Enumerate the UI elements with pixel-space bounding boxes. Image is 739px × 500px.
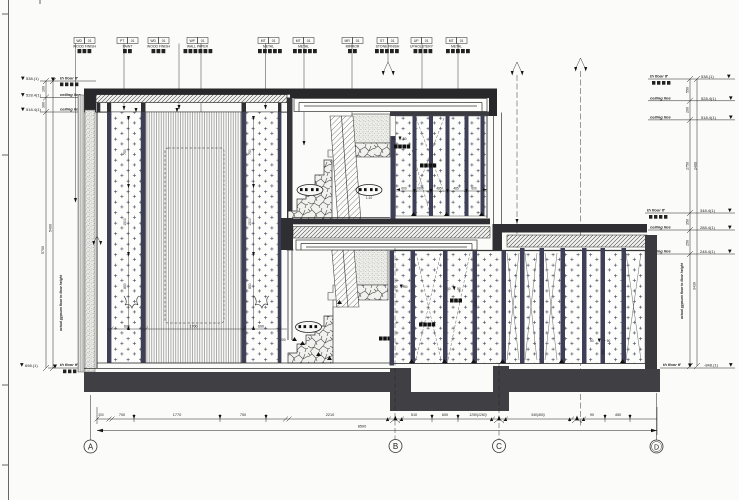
svg-text:1:10: 1:10 bbox=[366, 196, 372, 200]
svg-text:WP: WP bbox=[189, 39, 195, 43]
svg-text:50: 50 bbox=[404, 285, 408, 289]
svg-text:01: 01 bbox=[391, 39, 395, 43]
svg-text:750: 750 bbox=[248, 149, 252, 155]
svg-text:90: 90 bbox=[590, 413, 594, 417]
svg-text:01: 01 bbox=[201, 39, 205, 43]
svg-text:690: 690 bbox=[258, 325, 264, 329]
svg-text:700: 700 bbox=[240, 413, 246, 417]
svg-text:350: 350 bbox=[601, 349, 605, 355]
svg-text:8500: 8500 bbox=[358, 425, 366, 429]
svg-text:2210: 2210 bbox=[326, 413, 334, 417]
svg-text:850: 850 bbox=[123, 283, 127, 289]
svg-text:ceiling line: ceiling line bbox=[650, 225, 671, 230]
svg-text:actual gypsum floor to floor h: actual gypsum floor to floor height bbox=[680, 262, 684, 319]
svg-text:1700: 1700 bbox=[190, 325, 198, 329]
svg-text:348.4(1): 348.4(1) bbox=[700, 208, 716, 213]
svg-text:METAL: METAL bbox=[298, 45, 309, 49]
svg-text:01: 01 bbox=[460, 39, 464, 43]
svg-text:1290(1260): 1290(1260) bbox=[469, 413, 486, 417]
svg-text:528.4(1): 528.4(1) bbox=[26, 93, 42, 98]
svg-text:50: 50 bbox=[457, 287, 461, 291]
svg-text:MT: MT bbox=[261, 39, 266, 43]
svg-text:WOOD FINISH: WOOD FINISH bbox=[147, 45, 171, 49]
svg-text:01: 01 bbox=[162, 39, 166, 43]
svg-text:250: 250 bbox=[686, 240, 690, 246]
svg-text:-848.(1): -848.(1) bbox=[704, 363, 719, 368]
svg-text:1500: 1500 bbox=[123, 218, 127, 226]
svg-text:UP: UP bbox=[414, 39, 419, 43]
svg-text:50: 50 bbox=[590, 339, 594, 343]
svg-text:288.4(1): 288.4(1) bbox=[700, 225, 716, 230]
svg-text:A: A bbox=[88, 443, 94, 452]
svg-text:MR: MR bbox=[345, 39, 351, 43]
svg-text:1500: 1500 bbox=[248, 218, 252, 226]
svg-text:750: 750 bbox=[123, 149, 127, 155]
svg-text:200: 200 bbox=[280, 338, 286, 342]
svg-text:600: 600 bbox=[401, 187, 407, 191]
svg-text:50: 50 bbox=[392, 137, 396, 141]
svg-text:B: B bbox=[393, 442, 398, 451]
svg-text:01: 01 bbox=[88, 39, 92, 43]
svg-text:50: 50 bbox=[447, 287, 451, 291]
svg-text:3430: 3430 bbox=[693, 282, 697, 290]
svg-text:MT: MT bbox=[449, 39, 454, 43]
svg-text:PT: PT bbox=[120, 39, 124, 43]
svg-text:50: 50 bbox=[403, 137, 407, 141]
svg-text:2400: 2400 bbox=[694, 162, 698, 170]
svg-text:5400: 5400 bbox=[49, 224, 53, 232]
svg-text:2350: 2350 bbox=[474, 299, 478, 307]
svg-text:01: 01 bbox=[307, 39, 311, 43]
svg-text:WALL PAPER: WALL PAPER bbox=[187, 45, 209, 49]
svg-text:528.4(1): 528.4(1) bbox=[701, 96, 717, 101]
svg-text:350: 350 bbox=[686, 219, 690, 225]
svg-text:WD: WD bbox=[76, 39, 82, 43]
svg-text:850: 850 bbox=[248, 283, 252, 289]
svg-text:538.(1): 538.(1) bbox=[26, 76, 39, 81]
svg-text:518.4(1): 518.4(1) bbox=[26, 107, 42, 112]
svg-text:WOOD FINISH: WOOD FINISH bbox=[73, 45, 97, 49]
svg-text:248.4(1): 248.4(1) bbox=[700, 249, 716, 254]
svg-text:th floor ff: th floor ff bbox=[60, 362, 78, 367]
svg-text:538.(1): 538.(1) bbox=[701, 74, 714, 79]
svg-text:ceiling line: ceiling line bbox=[650, 114, 671, 119]
svg-text:510: 510 bbox=[411, 413, 417, 417]
svg-text:01: 01 bbox=[272, 39, 276, 43]
svg-text:C: C bbox=[496, 442, 502, 451]
svg-text:+ 50: + 50 bbox=[604, 339, 611, 343]
svg-text:1770: 1770 bbox=[173, 413, 181, 417]
svg-text:5700: 5700 bbox=[41, 246, 45, 254]
svg-text:th floor ff: th floor ff bbox=[663, 362, 681, 367]
svg-text:th floor ff: th floor ff bbox=[650, 74, 668, 79]
svg-text:600: 600 bbox=[418, 187, 424, 191]
svg-text:450: 450 bbox=[615, 413, 621, 417]
svg-text:ST: ST bbox=[380, 39, 384, 43]
svg-text:MT: MT bbox=[296, 39, 301, 43]
svg-text:01: 01 bbox=[425, 39, 429, 43]
svg-text:MIRROR: MIRROR bbox=[346, 45, 360, 49]
svg-text:485: 485 bbox=[453, 187, 459, 191]
svg-text:540(450): 540(450) bbox=[531, 413, 545, 417]
svg-text:518.4(1): 518.4(1) bbox=[701, 115, 717, 120]
svg-text:METAL: METAL bbox=[451, 45, 462, 49]
svg-text:200: 200 bbox=[98, 413, 104, 417]
svg-text:01: 01 bbox=[131, 39, 135, 43]
svg-text:STONE FINISH: STONE FINISH bbox=[376, 45, 400, 49]
svg-text:700: 700 bbox=[119, 413, 125, 417]
svg-text:485: 485 bbox=[436, 187, 442, 191]
svg-text:WD: WD bbox=[150, 39, 156, 43]
svg-text:698.(1): 698.(1) bbox=[25, 363, 38, 368]
svg-text:actual gypsum floor to floor h: actual gypsum floor to floor height bbox=[59, 274, 63, 331]
svg-text:ceiling line: ceiling line bbox=[650, 95, 671, 100]
svg-text:100: 100 bbox=[42, 86, 46, 92]
svg-text:550: 550 bbox=[686, 87, 690, 93]
svg-text:D: D bbox=[654, 445, 659, 452]
svg-text:METAL: METAL bbox=[263, 45, 274, 49]
svg-text:300: 300 bbox=[42, 102, 46, 108]
svg-text:2750: 2750 bbox=[686, 162, 690, 170]
svg-text:50: 50 bbox=[394, 285, 398, 289]
svg-text:600: 600 bbox=[471, 187, 477, 191]
svg-text:01: 01 bbox=[356, 39, 360, 43]
svg-text:600: 600 bbox=[442, 413, 448, 417]
svg-text:200: 200 bbox=[686, 107, 690, 113]
svg-text:th floor ff: th floor ff bbox=[647, 208, 665, 213]
